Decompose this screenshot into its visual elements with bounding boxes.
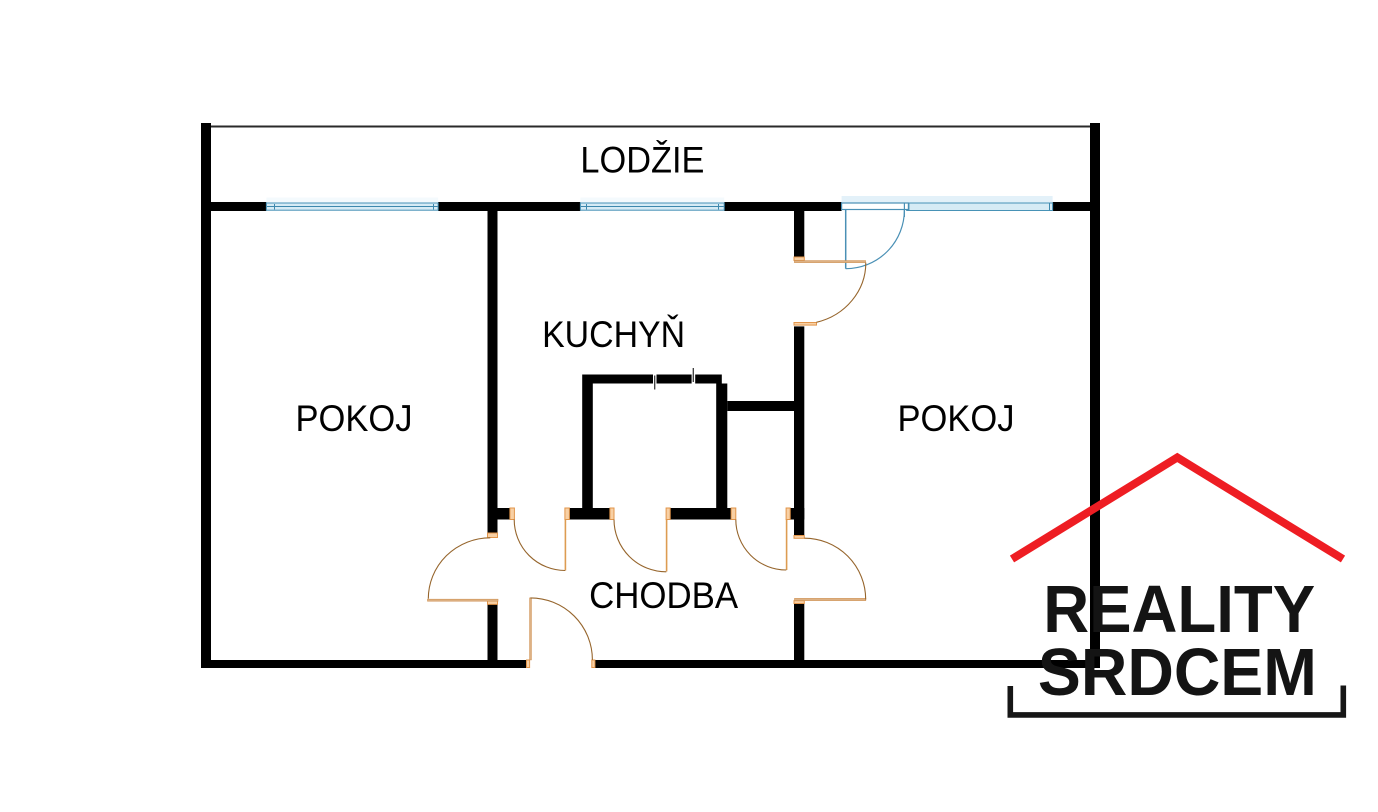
svg-text:POKOJ: POKOJ: [296, 398, 413, 439]
svg-text:POKOJ: POKOJ: [898, 398, 1015, 439]
svg-text:SRDCEM: SRDCEM: [1038, 635, 1317, 710]
svg-text:CHODBA: CHODBA: [589, 575, 738, 616]
svg-text:KUCHYŇ: KUCHYŇ: [542, 314, 685, 355]
svg-text:LODŽIE: LODŽIE: [580, 140, 704, 181]
